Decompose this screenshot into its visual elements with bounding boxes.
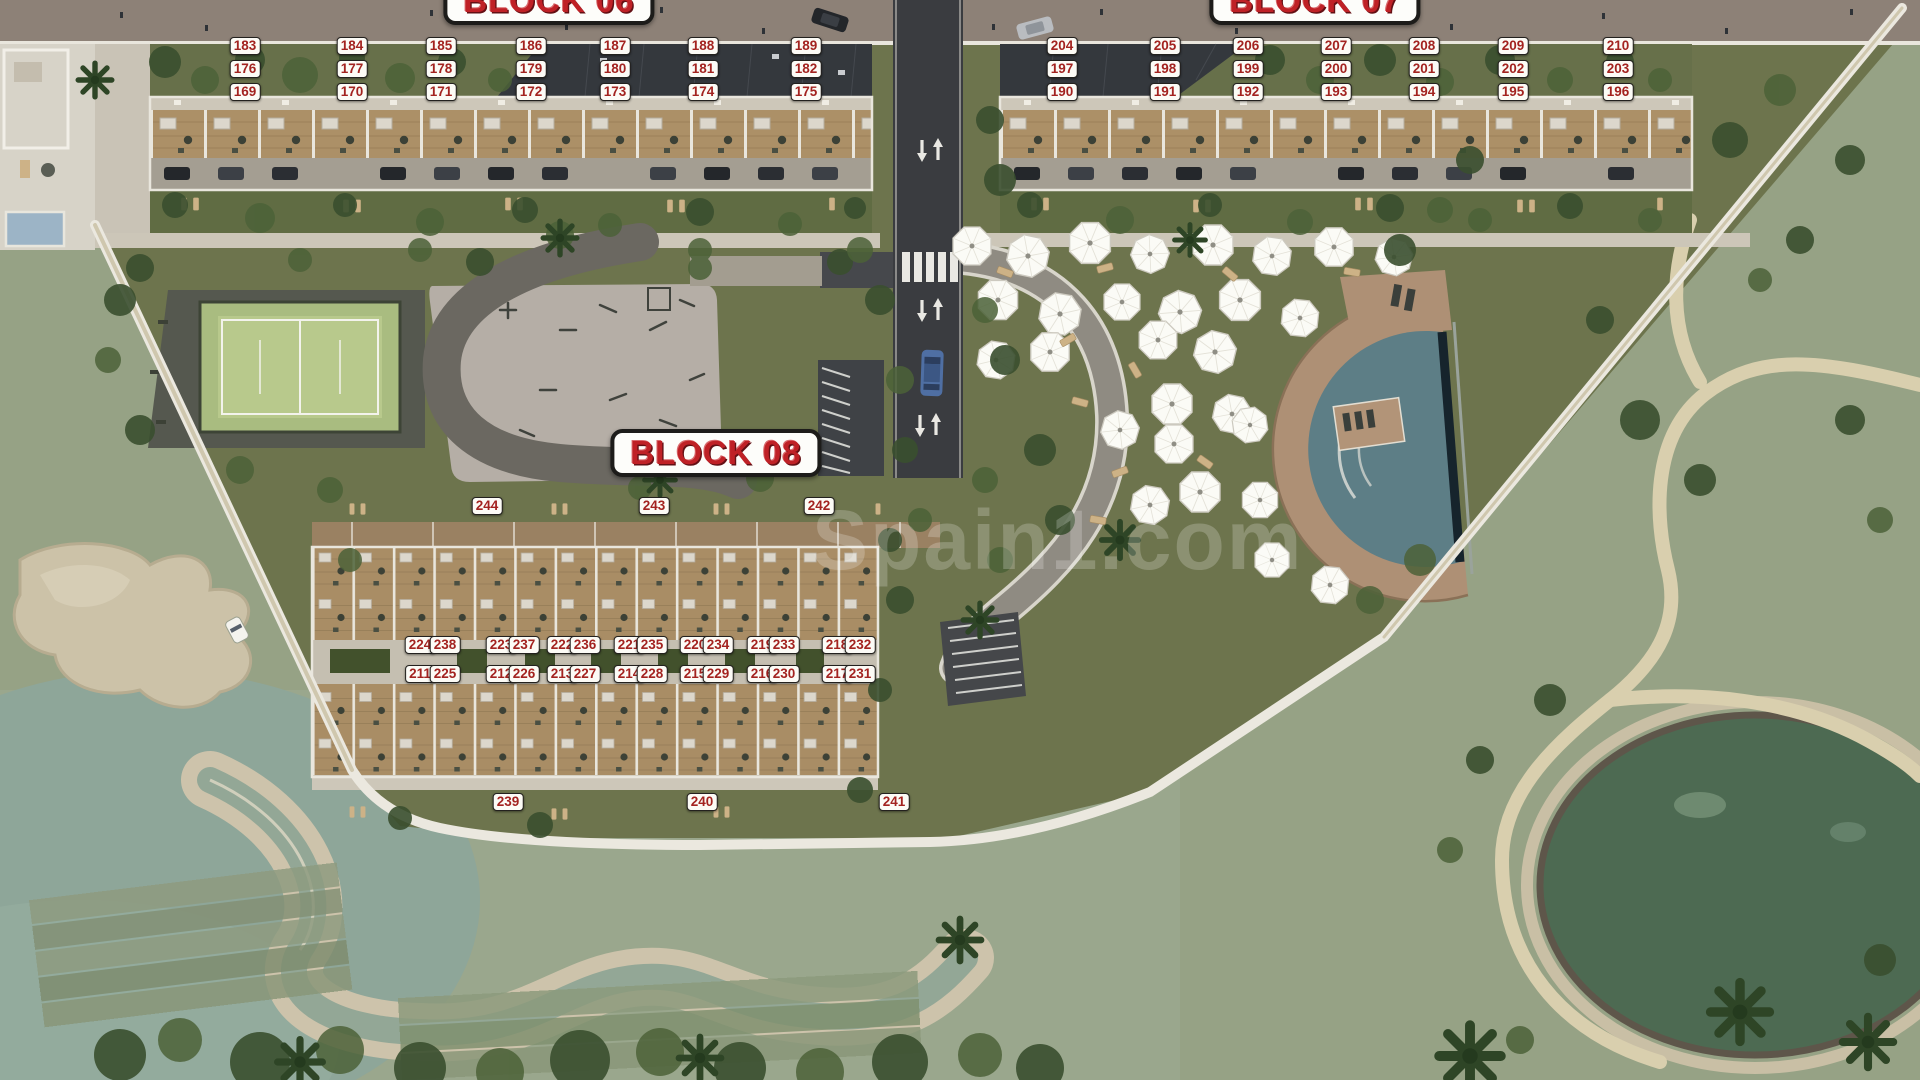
unit-label-238: 238 [430, 636, 461, 654]
unit-label-228: 228 [637, 665, 668, 683]
unit-label-243: 243 [639, 497, 670, 515]
unit-label-234: 234 [703, 636, 734, 654]
unit-label-241: 241 [879, 793, 910, 811]
unit-label-169: 169 [230, 83, 261, 101]
unit-label-189: 189 [791, 37, 822, 55]
unit-label-198: 198 [1150, 60, 1181, 78]
unit-label-172: 172 [516, 83, 547, 101]
unit-label-180: 180 [600, 60, 631, 78]
unit-label-195: 195 [1498, 83, 1529, 101]
unit-label-239: 239 [493, 793, 524, 811]
unit-label-203: 203 [1603, 60, 1634, 78]
unit-label-240: 240 [687, 793, 718, 811]
block-badge-block-06: BLOCK 06 [443, 0, 654, 25]
unit-label-200: 200 [1321, 60, 1352, 78]
unit-label-177: 177 [337, 60, 368, 78]
unit-label-210: 210 [1603, 37, 1634, 55]
unit-label-194: 194 [1409, 83, 1440, 101]
block-badge-block-07: BLOCK 07 [1209, 0, 1420, 25]
unit-label-184: 184 [337, 37, 368, 55]
unit-label-196: 196 [1603, 83, 1634, 101]
unit-label-183: 183 [230, 37, 261, 55]
unit-label-197: 197 [1047, 60, 1078, 78]
unit-label-188: 188 [688, 37, 719, 55]
unit-label-170: 170 [337, 83, 368, 101]
unit-label-185: 185 [426, 37, 457, 55]
site-plan-canvas: Spain1.com BLOCK 06BLOCK 07BLOCK 0818318… [0, 0, 1920, 1080]
unit-label-230: 230 [769, 665, 800, 683]
unit-label-244: 244 [472, 497, 503, 515]
unit-label-171: 171 [426, 83, 457, 101]
unit-label-227: 227 [570, 665, 601, 683]
unit-label-182: 182 [791, 60, 822, 78]
unit-label-242: 242 [804, 497, 835, 515]
unit-label-207: 207 [1321, 37, 1352, 55]
unit-label-209: 209 [1498, 37, 1529, 55]
unit-label-186: 186 [516, 37, 547, 55]
unit-label-226: 226 [509, 665, 540, 683]
unit-label-236: 236 [570, 636, 601, 654]
unit-label-205: 205 [1150, 37, 1181, 55]
unit-label-175: 175 [791, 83, 822, 101]
unit-label-199: 199 [1233, 60, 1264, 78]
labels-overlay: Spain1.com BLOCK 06BLOCK 07BLOCK 0818318… [0, 0, 1920, 1080]
unit-label-181: 181 [688, 60, 719, 78]
unit-label-191: 191 [1150, 83, 1181, 101]
unit-label-201: 201 [1409, 60, 1440, 78]
unit-label-225: 225 [430, 665, 461, 683]
unit-label-204: 204 [1047, 37, 1078, 55]
unit-label-208: 208 [1409, 37, 1440, 55]
unit-label-174: 174 [688, 83, 719, 101]
unit-label-173: 173 [600, 83, 631, 101]
unit-label-231: 231 [845, 665, 876, 683]
unit-label-176: 176 [230, 60, 261, 78]
unit-label-187: 187 [600, 37, 631, 55]
unit-label-206: 206 [1233, 37, 1264, 55]
unit-label-193: 193 [1321, 83, 1352, 101]
unit-label-202: 202 [1498, 60, 1529, 78]
unit-label-192: 192 [1233, 83, 1264, 101]
unit-label-232: 232 [845, 636, 876, 654]
unit-label-233: 233 [769, 636, 800, 654]
unit-label-235: 235 [637, 636, 668, 654]
unit-label-237: 237 [509, 636, 540, 654]
unit-label-179: 179 [516, 60, 547, 78]
watermark: Spain1.com [812, 492, 1303, 589]
unit-label-178: 178 [426, 60, 457, 78]
unit-label-190: 190 [1047, 83, 1078, 101]
unit-label-229: 229 [703, 665, 734, 683]
block-badge-block-08: BLOCK 08 [610, 429, 821, 477]
